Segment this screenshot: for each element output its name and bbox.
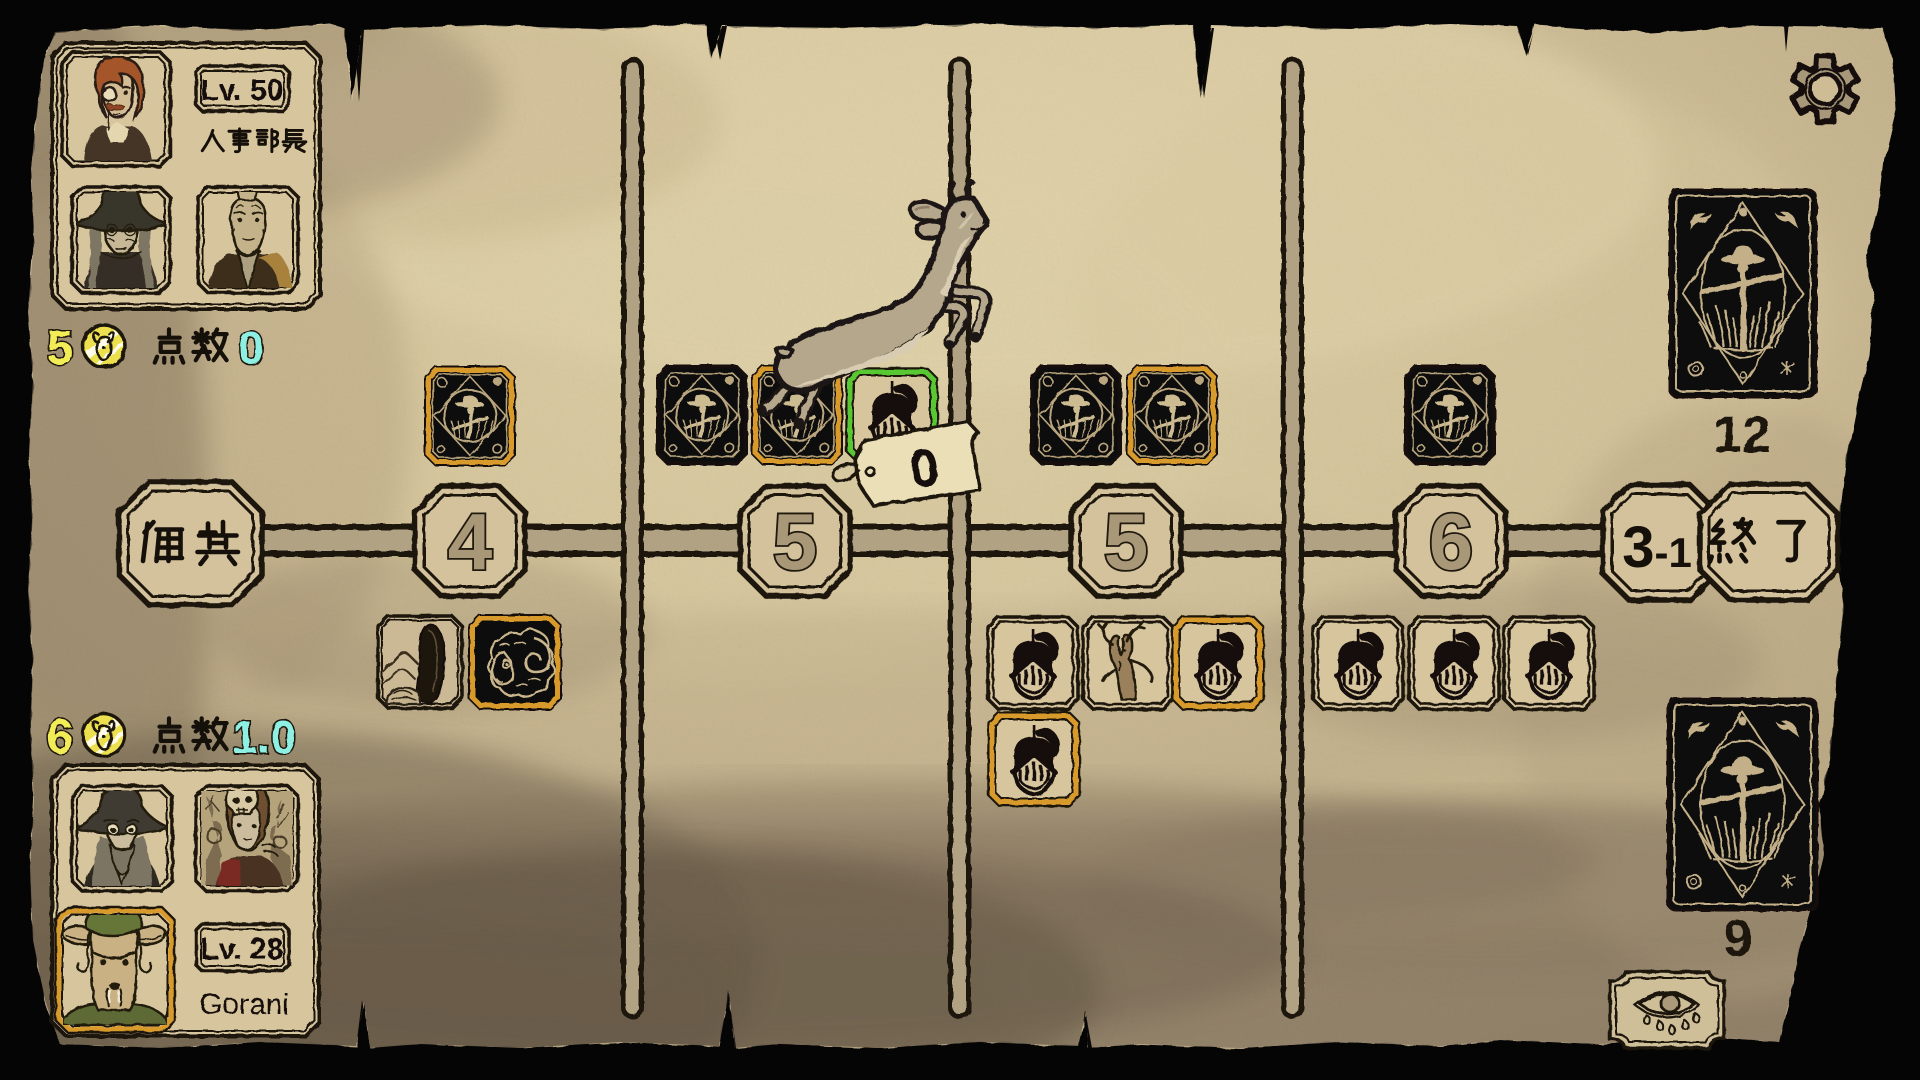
svg-text:5: 5 bbox=[1104, 497, 1149, 586]
svg-text:9: 9 bbox=[1724, 910, 1753, 968]
svg-text:5: 5 bbox=[773, 497, 818, 586]
svg-text:0: 0 bbox=[907, 439, 942, 500]
svg-text:6: 6 bbox=[47, 711, 74, 764]
svg-text:Lv. 50: Lv. 50 bbox=[201, 74, 284, 107]
svg-text:0: 0 bbox=[238, 322, 264, 374]
svg-text:5: 5 bbox=[47, 322, 74, 375]
svg-text:1.0: 1.0 bbox=[232, 711, 296, 763]
svg-text:4: 4 bbox=[448, 497, 493, 586]
svg-text:6: 6 bbox=[1429, 497, 1474, 586]
svg-text:Gorani: Gorani bbox=[199, 988, 289, 1021]
svg-text:12: 12 bbox=[1713, 406, 1771, 464]
svg-text:Lv. 28: Lv. 28 bbox=[201, 933, 284, 966]
